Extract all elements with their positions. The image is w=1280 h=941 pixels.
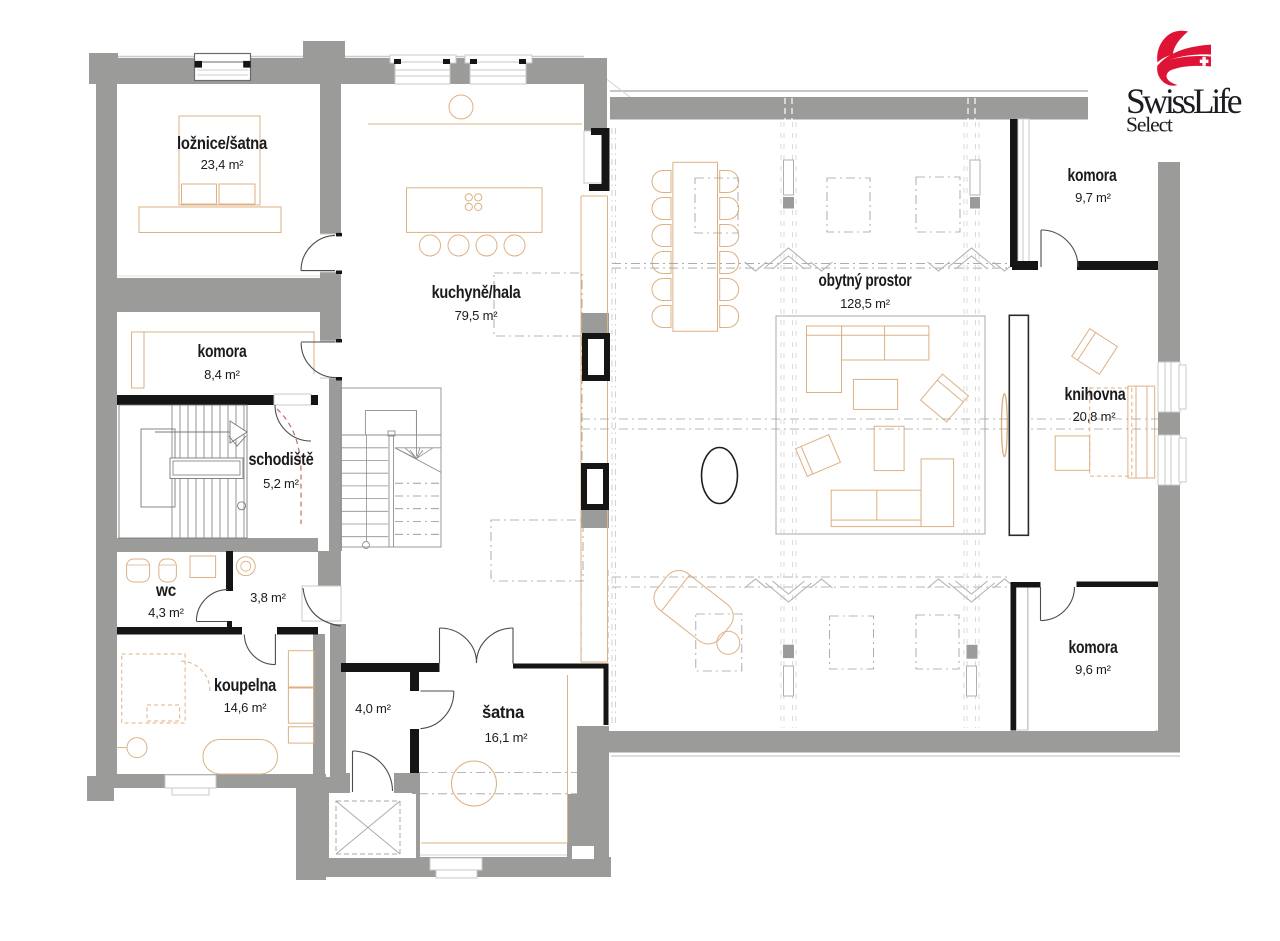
svg-text:3,8 m²: 3,8 m² xyxy=(250,590,287,605)
svg-text:9,7 m²: 9,7 m² xyxy=(1075,190,1112,205)
svg-text:5,2 m²: 5,2 m² xyxy=(263,476,300,491)
svg-text:wc: wc xyxy=(155,581,176,600)
svg-text:obytný prostor: obytný prostor xyxy=(819,272,912,291)
svg-text:8,4 m²: 8,4 m² xyxy=(204,367,241,382)
svg-text:šatna: šatna xyxy=(482,703,525,722)
svg-text:ložnice/šatna: ložnice/šatna xyxy=(177,134,268,153)
svg-text:koupelna: koupelna xyxy=(214,676,277,696)
svg-text:79,5 m²: 79,5 m² xyxy=(455,308,499,323)
svg-text:4,0 m²: 4,0 m² xyxy=(355,701,392,716)
svg-text:4,3 m²: 4,3 m² xyxy=(148,605,185,620)
svg-text:knihovna: knihovna xyxy=(1064,386,1125,405)
svg-text:schodiště: schodiště xyxy=(249,450,314,470)
svg-text:20,8 m²: 20,8 m² xyxy=(1073,409,1117,424)
svg-text:Select: Select xyxy=(1126,113,1173,137)
svg-text:komora: komora xyxy=(1067,167,1116,186)
svg-text:9,6 m²: 9,6 m² xyxy=(1075,662,1112,677)
svg-text:komora: komora xyxy=(197,343,246,362)
svg-text:komora: komora xyxy=(1068,639,1117,658)
svg-text:23,4 m²: 23,4 m² xyxy=(201,157,245,172)
svg-text:kuchyně/hala: kuchyně/hala xyxy=(432,283,522,303)
svg-text:14,6 m²: 14,6 m² xyxy=(224,700,268,715)
svg-text:128,5 m²: 128,5 m² xyxy=(840,296,891,311)
svg-text:16,1 m²: 16,1 m² xyxy=(485,730,529,745)
